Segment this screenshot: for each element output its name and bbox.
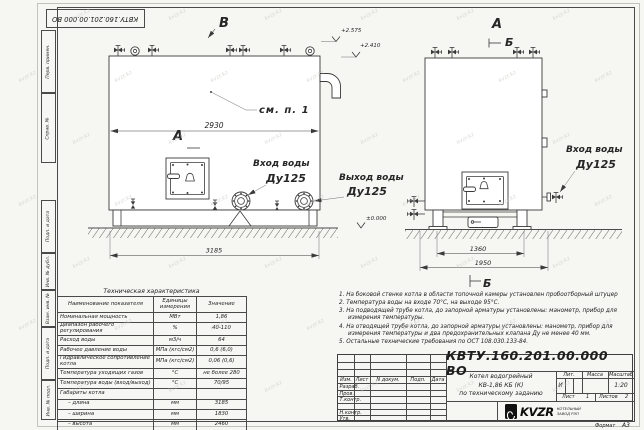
table-row: Номинальная мощностьМВт1,86	[58, 313, 247, 323]
note-3: 3. На подводящей трубе котла, до запорно…	[339, 308, 633, 322]
coil-icon	[505, 404, 517, 419]
table-row: Диапазон рабочего регулирования%40-110	[58, 323, 247, 335]
note-5: 5. Остальные технические требования по О…	[339, 339, 633, 346]
table-row: – высотамм2460	[58, 420, 247, 430]
spec-col-value: Значение	[197, 297, 247, 313]
org-name: КОТЕЛЬНЫЙ ЗАВОД РЭП	[557, 407, 581, 416]
watermark-text: kvzr.kz	[18, 318, 38, 332]
lit-value: И	[558, 382, 563, 389]
col-podp: Подп.	[410, 377, 425, 383]
notes-block: 1. На боковой стенке котла в области топ…	[339, 292, 633, 347]
watermark-text: kvzr.kz	[18, 194, 38, 208]
titleblock-doc-number: КВТУ.160.201.00.000 ВО	[446, 355, 634, 371]
note-4: 4. На отводящей трубе котла, до запорной…	[339, 324, 633, 338]
logo-text: KVZR	[520, 405, 554, 419]
sheets-value: 2	[625, 394, 628, 400]
side-field-inv-podl: Инв. № подл.	[41, 380, 56, 420]
col-data: Дата	[432, 377, 445, 383]
side-field-vzam-inv: Взам. инв. №	[41, 290, 56, 327]
format-label: Формат	[595, 423, 615, 429]
title-block: Изм. Лист N докум. Подп. Дата Разраб. Пр…	[337, 354, 633, 421]
sheet-value: 1	[586, 394, 589, 400]
spec-table: Техническая характеристика Наименование …	[57, 287, 246, 430]
watermark-text: kvzr.kz	[18, 70, 38, 84]
col-izm: Изм.	[340, 377, 352, 383]
table-row: Температура воды (вход/выход)°С70/95	[58, 379, 247, 389]
note-1: 1. На боковой стенке котла в области топ…	[339, 292, 633, 299]
row-nkontr: Н.контр.	[340, 410, 362, 416]
table-row: Расход водым3/ч64	[58, 335, 247, 345]
format-field: Формат А3	[560, 422, 640, 430]
table-row: Габариты котла	[58, 389, 247, 399]
row-tkontr: Т.контр.	[340, 397, 362, 403]
format-value: А3	[622, 422, 630, 429]
row-utv: Утв.	[340, 416, 351, 422]
lit-label: Лит.	[563, 372, 575, 378]
side-field-sprav-no: Справ. №	[41, 93, 56, 163]
note-2: 2. Температура воды на входе 70°С, на вы…	[339, 300, 633, 307]
product-name: Котел водогрейный КВ-1,86 КБ (К) по техн…	[446, 371, 556, 401]
scale-value: 1:20	[614, 382, 627, 389]
table-row: – ширинамм1830	[58, 409, 247, 419]
table-row: Температура уходящих газов°Сне более 280	[58, 368, 247, 378]
col-list: Лист	[356, 377, 369, 383]
scale-label: Масштаб	[609, 372, 633, 378]
side-field-perv-primen: Перв. примен.	[41, 30, 56, 93]
spec-col-unit: Единицы измерения	[154, 297, 197, 313]
row-prov: Пров.	[340, 391, 355, 397]
top-doc-number-stamp: КВТУ.160.201.00.000 ВО	[46, 9, 145, 28]
table-row: Рабочее давление водыМПа (кгс/см2)0,6 (6…	[58, 346, 247, 356]
drawing-sheet: КВТУ.160.201.00.000 ВО Перв. примен. Спр…	[0, 0, 644, 430]
top-doc-number: КВТУ.160.201.00.000 ВО	[52, 15, 138, 23]
spec-table-title: Техническая характеристика	[57, 287, 246, 296]
row-razrab: Разраб.	[340, 384, 360, 390]
side-field-inv-dubl: Инв. № дубл.	[41, 253, 56, 290]
sheets-label: Листов	[599, 394, 618, 400]
col-dokum: N докум.	[376, 377, 399, 383]
mass-label: Масса	[587, 372, 603, 378]
side-field-podp-data-1: Подп. и дата	[41, 200, 56, 253]
side-field-podp-data-2: Подп. и дата	[41, 327, 56, 380]
table-row: – длинамм3185	[58, 399, 247, 409]
manufacturer-logo: KVZR КОТЕЛЬНЫЙ ЗАВОД РЭП	[497, 401, 634, 422]
sheet-label: Лист	[562, 394, 575, 400]
spec-col-name: Наименование показателя	[58, 297, 154, 313]
table-row: Гидравлическое сопротивление котлаМПа (к…	[58, 356, 247, 368]
